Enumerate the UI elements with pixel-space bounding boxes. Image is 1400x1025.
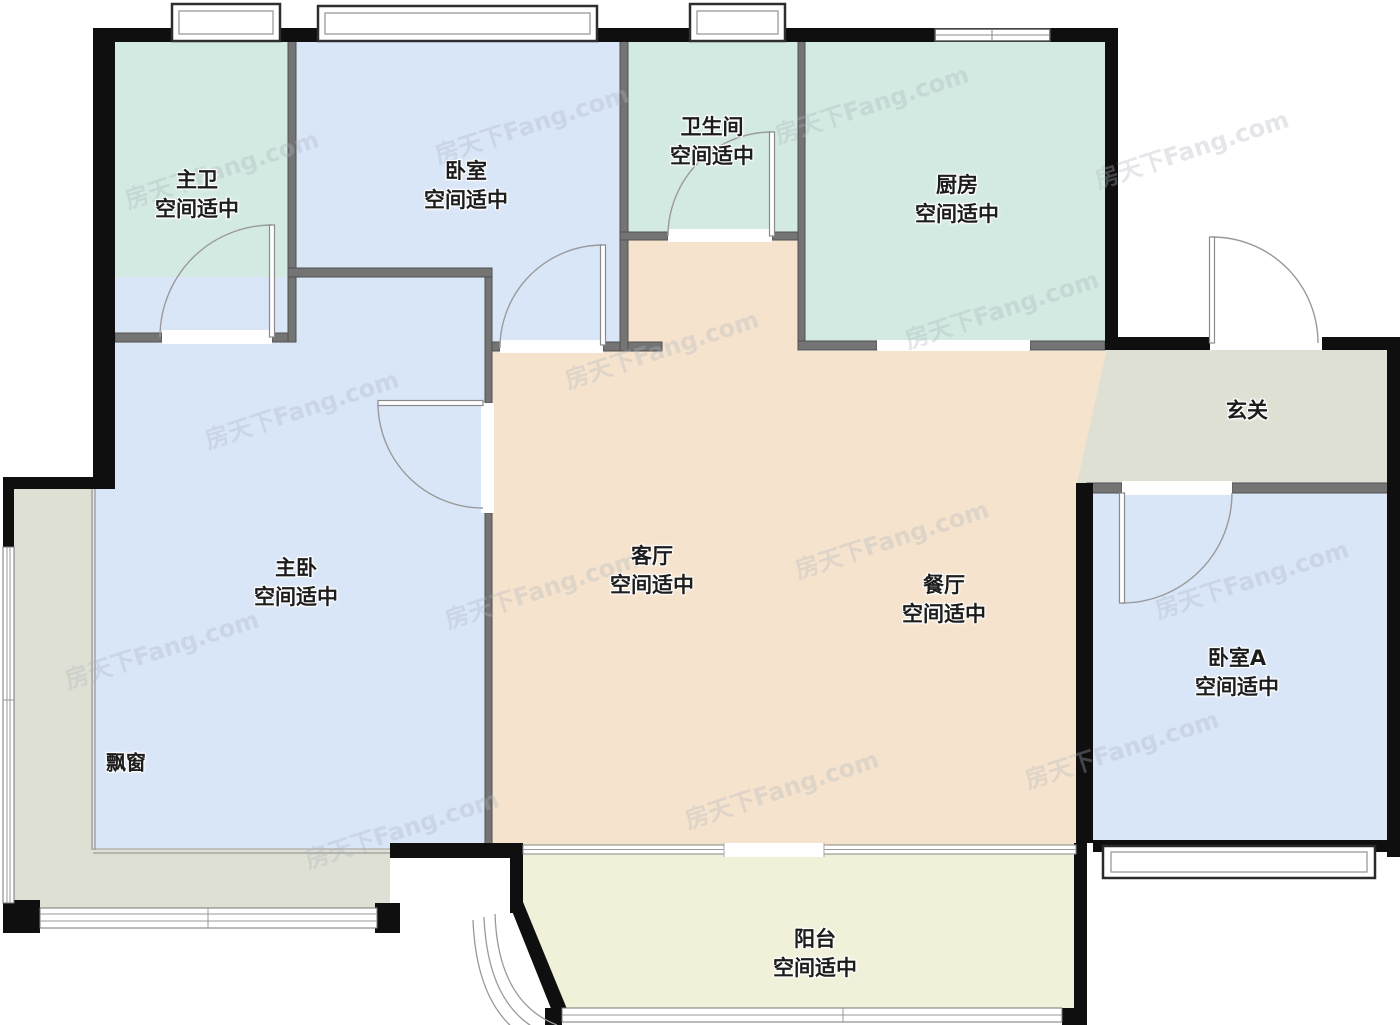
- window-top-bedroom: [318, 6, 597, 41]
- door-leaf-master-bed: [378, 401, 483, 406]
- room-kitchen-floor: [805, 40, 1105, 341]
- floorplan-canvas: 房天下Fang.com 房天下Fang.com 房天下Fang.com 房天下F…: [0, 0, 1400, 1025]
- room-balcony-floor: [519, 853, 1076, 1014]
- window-balcony-bottom: [562, 1008, 1062, 1022]
- window-bedroom-a-bottom: [1103, 846, 1375, 878]
- door-leaf-master-bath: [270, 225, 275, 337]
- window-top-bathroom: [690, 4, 785, 41]
- door-leaf-bedroom-top: [601, 245, 606, 345]
- room-entry-floor: [1077, 348, 1388, 483]
- door-arc-entry: [1212, 237, 1318, 343]
- door-leaf-bedroom-a: [1120, 493, 1125, 603]
- window-bay-bottom: [40, 908, 377, 928]
- window-bay-left: [3, 547, 14, 903]
- door-leaf-entry: [1210, 237, 1215, 343]
- opening-kitchen: [877, 340, 1030, 350]
- room-bedroom-a-floor: [1093, 493, 1388, 840]
- window-top-master-bath: [172, 4, 280, 41]
- door-leaf-bathroom: [770, 132, 775, 236]
- floorplan-drawing: [0, 0, 1400, 1025]
- room-master-bed-floor: [93, 277, 492, 848]
- room-bay-window-floor-left: [13, 487, 93, 918]
- window-kitchen: [935, 29, 1050, 41]
